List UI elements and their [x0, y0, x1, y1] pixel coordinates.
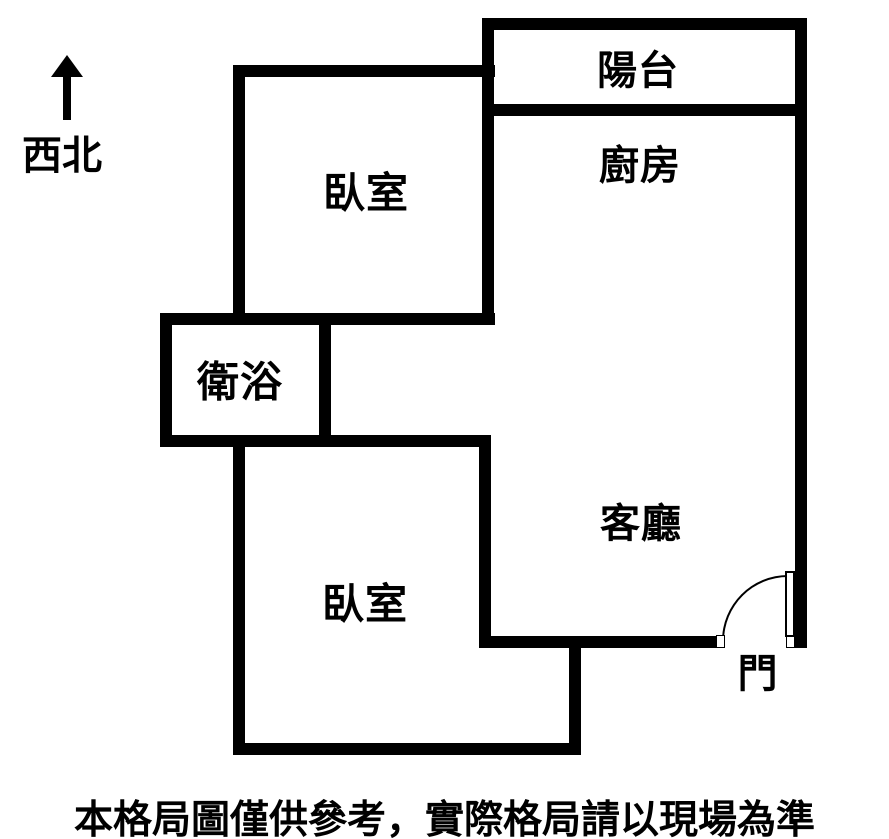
- room-label-kitchen: 廚房: [599, 133, 681, 191]
- room-label-bathroom: 衛浴: [197, 349, 283, 410]
- wall-bathroom-bottom: [160, 435, 491, 447]
- room-label-bedroom-bottom: 臥室: [322, 571, 408, 632]
- wall-balcony-bottom: [482, 104, 807, 116]
- wall-bedroom-top-top: [233, 65, 495, 77]
- door-swing-arc-icon: [722, 575, 788, 641]
- wall-bathroom-left: [160, 313, 172, 447]
- door-jamb-left: [716, 635, 725, 648]
- compass-direction-label: 西北: [22, 123, 102, 181]
- room-label-balcony: 陽台: [597, 38, 679, 96]
- wall-living-bottom: [479, 636, 722, 648]
- wall-bathroom-right: [319, 313, 331, 447]
- room-label-entry-door: 門: [738, 641, 779, 699]
- wall-step-vertical: [569, 636, 581, 755]
- wall-living-left: [479, 435, 491, 648]
- room-label-living-room: 客廳: [600, 491, 682, 549]
- wall-bedroom-bottom-left: [233, 435, 245, 755]
- north-arrow-shaft: [63, 72, 71, 120]
- wall-bedroom-top-left: [233, 65, 245, 325]
- wall-kitchen-left: [482, 18, 494, 324]
- disclaimer-text: 本格局圖僅供參考，實際格局請以現場為準: [0, 789, 889, 839]
- room-label-bedroom-top: 臥室: [323, 160, 409, 221]
- wall-bedroom-bottom-bottom: [233, 743, 581, 755]
- wall-balcony-top: [482, 18, 807, 30]
- door-leaf-icon: [785, 571, 795, 637]
- floor-plan: 西北 陽台 廚房 臥室 衛浴 客廳 臥室 門 本格局圖僅供參考，實際格局請以現場…: [0, 0, 889, 839]
- wall-outer-right: [795, 18, 807, 648]
